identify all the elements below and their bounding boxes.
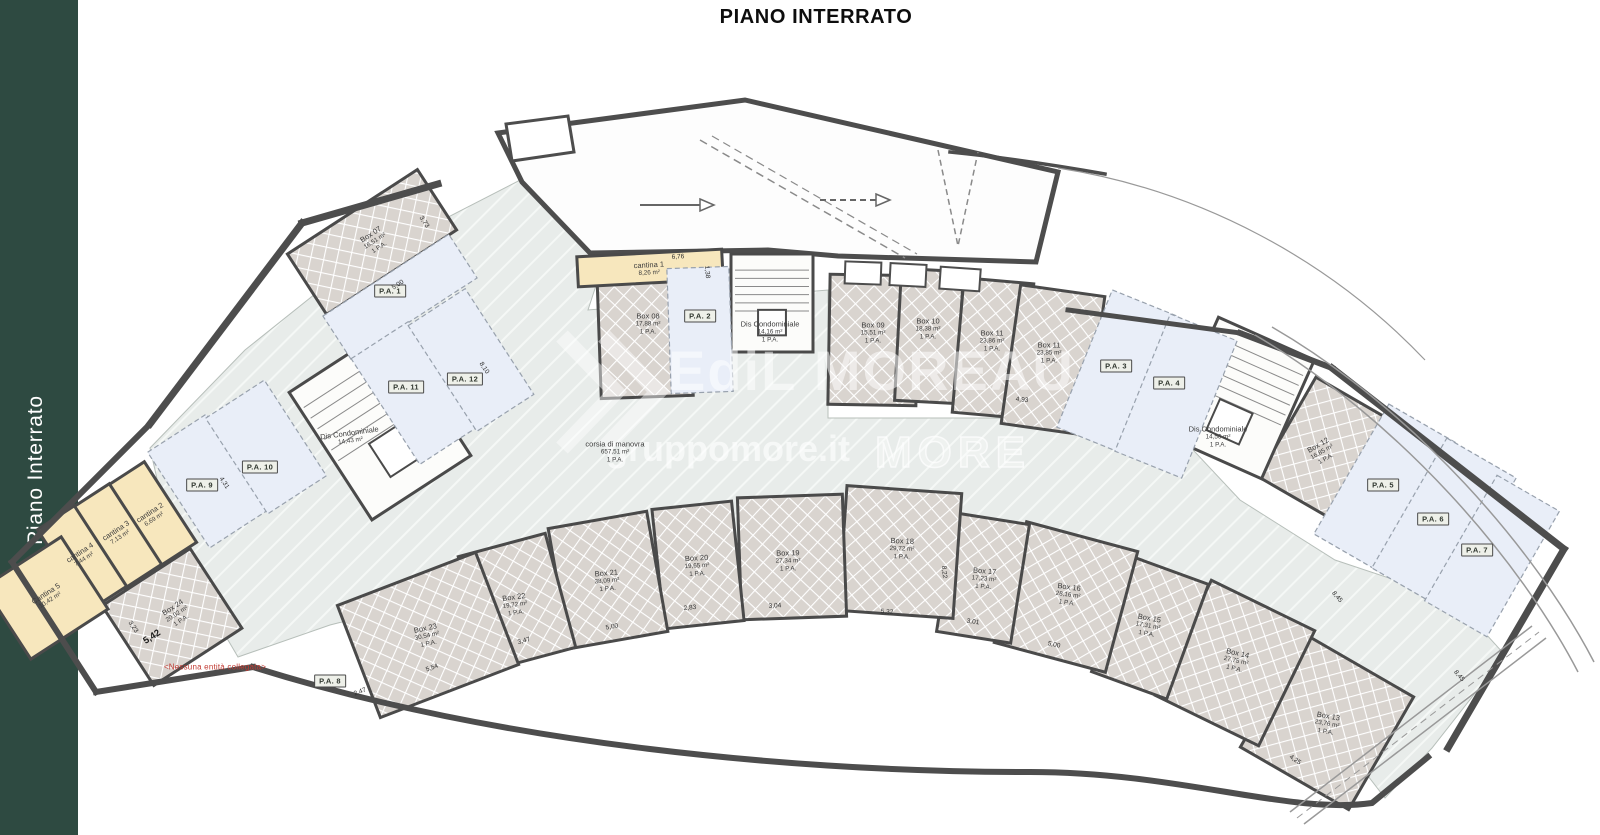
light-well-3 (939, 267, 980, 292)
room-pa2[interactable] (667, 266, 733, 393)
light-well-1 (845, 261, 882, 284)
room-box19[interactable] (737, 494, 846, 620)
room-box18[interactable] (838, 486, 961, 619)
plan-canvas (0, 0, 1600, 835)
ramp-notch (506, 116, 574, 161)
light-well-2 (889, 263, 926, 287)
room-box20[interactable] (652, 501, 744, 629)
floorplan-page: Piano Interrato PIANO INTERRATO (0, 0, 1600, 835)
ramp-area (498, 100, 1058, 262)
room-stair-center[interactable] (731, 254, 813, 352)
